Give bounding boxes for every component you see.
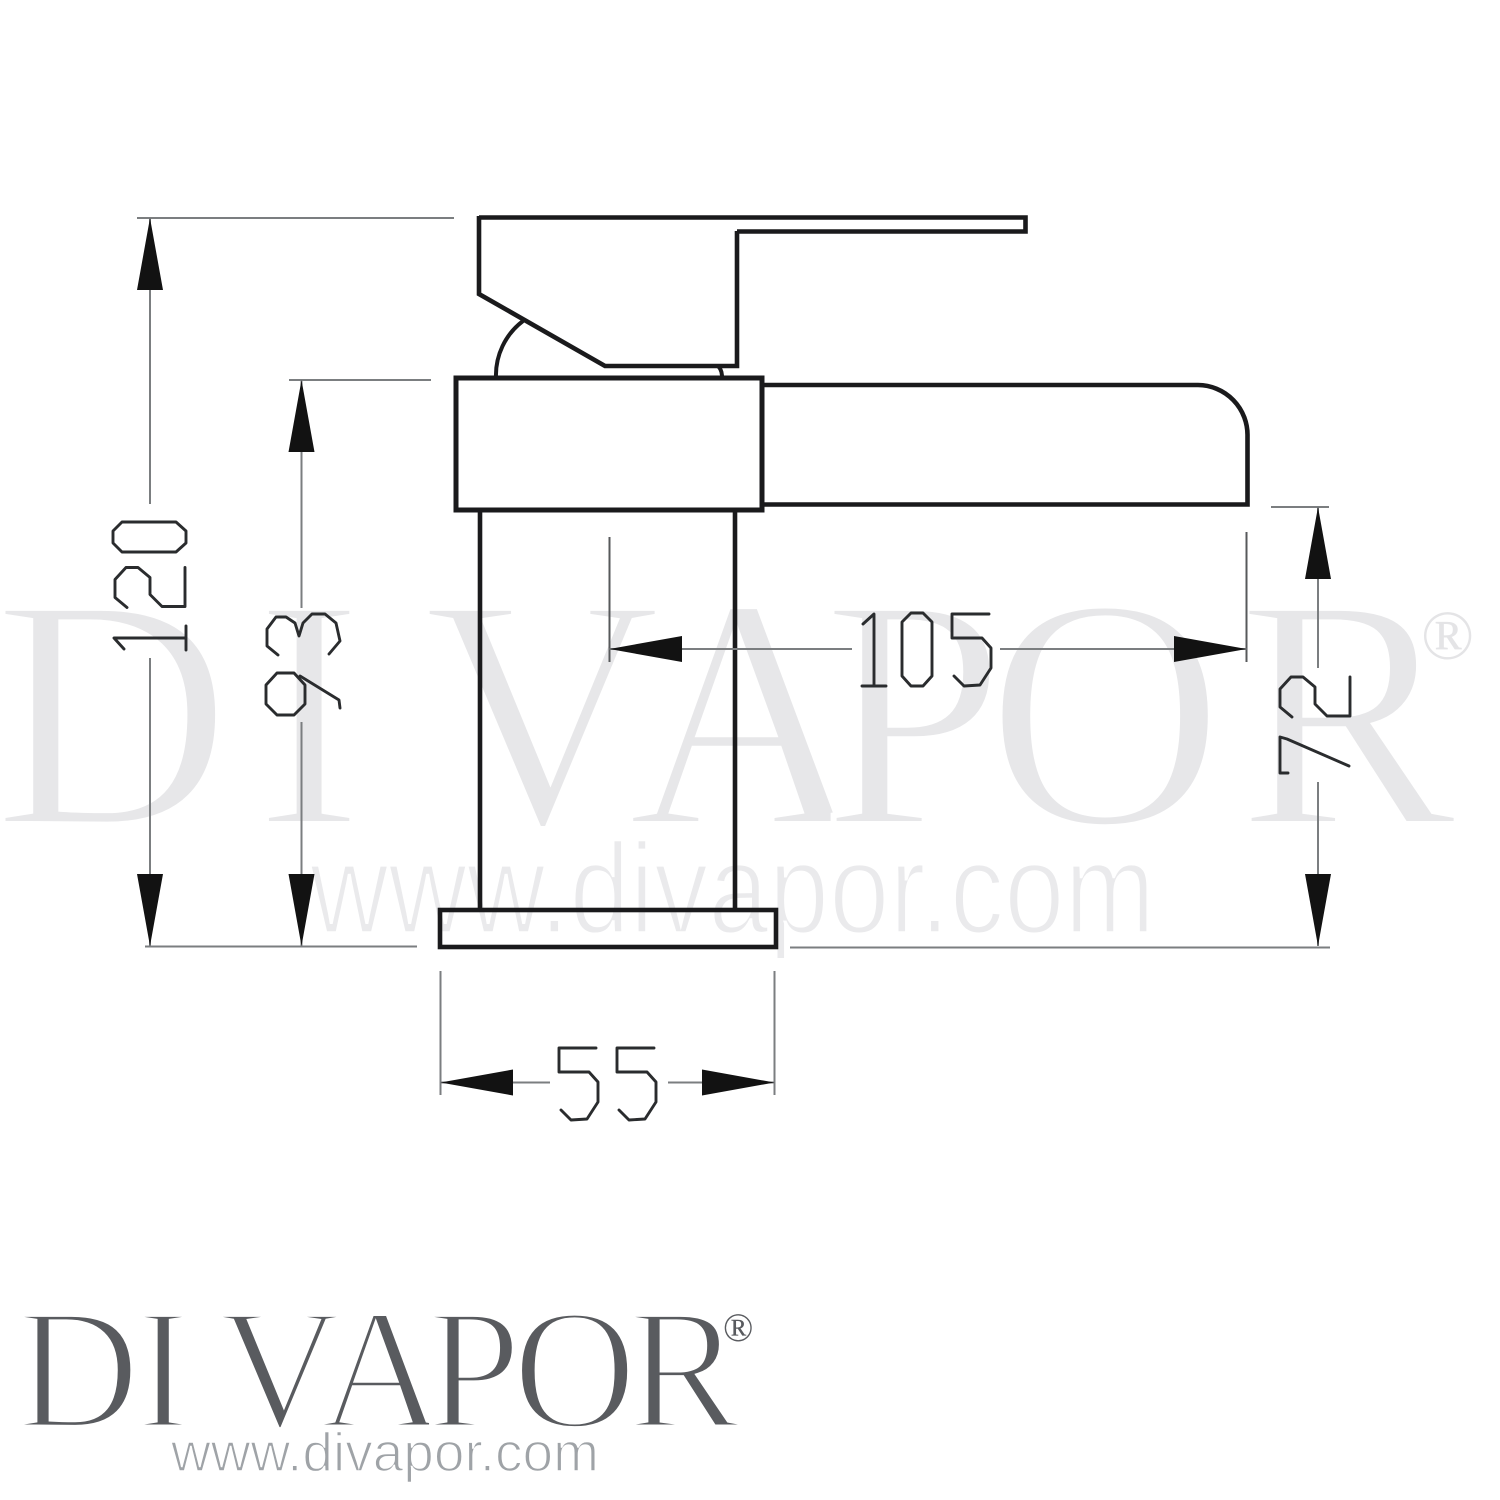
svg-text:R: R [627,1275,742,1465]
svg-text:D: D [16,1275,140,1465]
svg-text:®: ® [1421,598,1474,675]
svg-text:R: R [1237,531,1459,896]
svg-text:www.divapor.com: www.divapor.com [309,817,1155,961]
svg-text:www.divapor.com: www.divapor.com [170,1421,599,1483]
svg-text:®: ® [723,1305,753,1350]
